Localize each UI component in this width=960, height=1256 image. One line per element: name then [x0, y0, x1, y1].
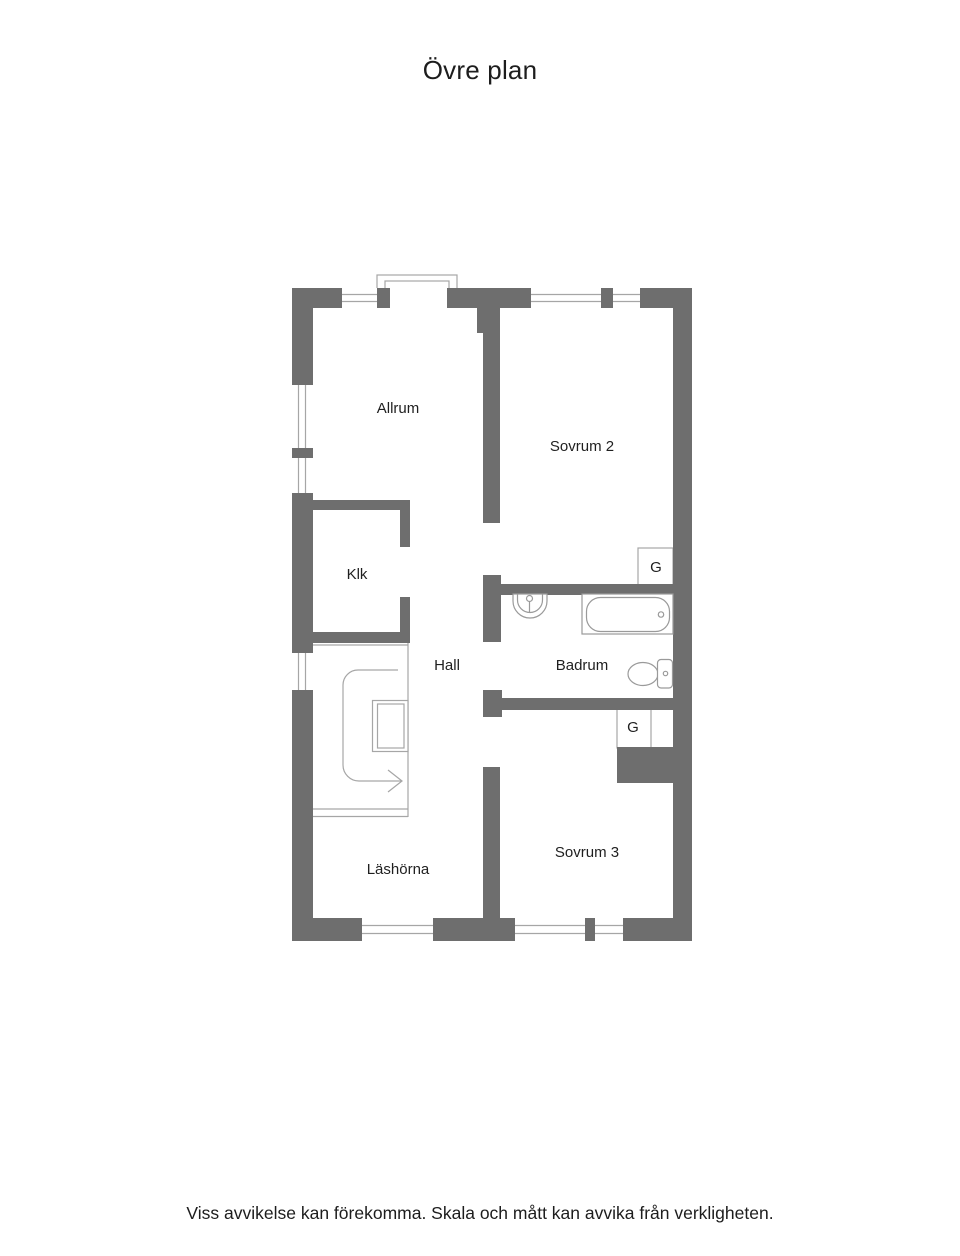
- chimney: [373, 701, 409, 752]
- floor-plan-drawing: Allrum Sovrum 2 Klk Hall Badrum G G Sovr…: [270, 260, 710, 955]
- room-label-sovrum-2: Sovrum 2: [550, 438, 614, 455]
- room-label-lashorna: Läshörna: [367, 861, 430, 878]
- balcony-marking: [377, 275, 457, 289]
- toilet-icon: [628, 660, 673, 689]
- wardrobe-label-upper: G: [650, 559, 662, 576]
- room-label-hall: Hall: [434, 657, 460, 674]
- staircase: [313, 643, 408, 817]
- disclaimer-text: Viss avvikelse kan förekomma. Skala och …: [0, 1203, 960, 1224]
- page-title: Övre plan: [0, 55, 960, 86]
- floor-plan-page: Övre plan: [0, 0, 960, 1256]
- room-label-allrum: Allrum: [377, 400, 420, 417]
- sink-icon: [513, 594, 547, 618]
- room-label-klk: Klk: [347, 566, 368, 583]
- room-label-sovrum-3: Sovrum 3: [555, 844, 619, 861]
- room-label-badrum: Badrum: [556, 657, 609, 674]
- bathtub-icon: [582, 594, 673, 634]
- balcony-door-opening: [390, 288, 447, 308]
- wardrobe-label-lower: G: [627, 719, 639, 736]
